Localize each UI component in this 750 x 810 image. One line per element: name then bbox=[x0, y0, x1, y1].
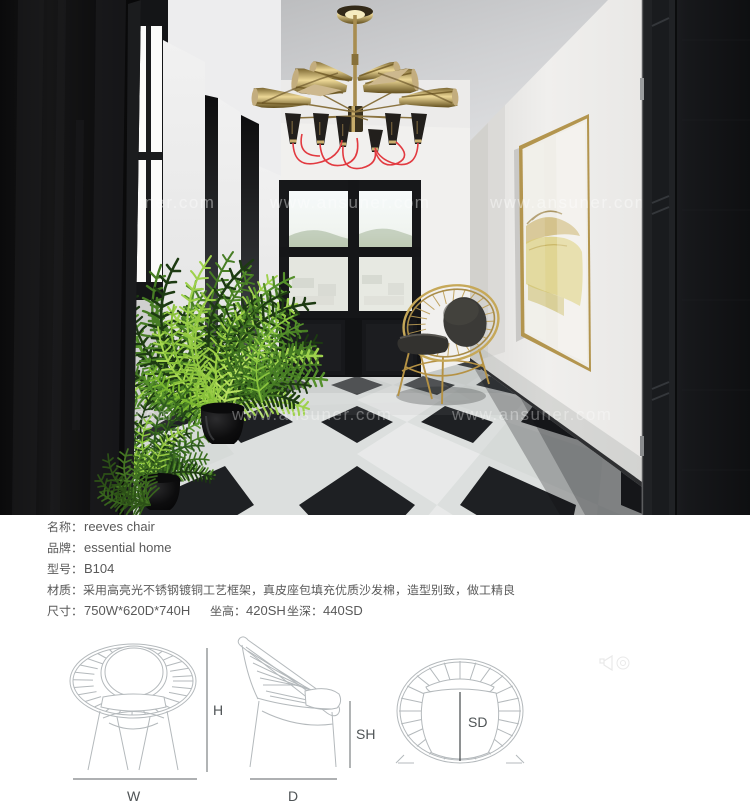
svg-text:www.ansuner.com: www.ansuner.com bbox=[451, 405, 612, 424]
svg-text:W: W bbox=[127, 788, 141, 804]
svg-text:D: D bbox=[288, 788, 298, 804]
svg-text:SD: SD bbox=[468, 714, 487, 730]
svg-text:www.ansuner.com: www.ansuner.com bbox=[489, 193, 650, 212]
svg-text:H: H bbox=[213, 702, 223, 718]
svg-text:www.ansuner.com: www.ansuner.com bbox=[269, 193, 430, 212]
svg-text:SH: SH bbox=[356, 726, 375, 742]
svg-text:www.ansuner.com: www.ansuner.com bbox=[231, 405, 392, 424]
